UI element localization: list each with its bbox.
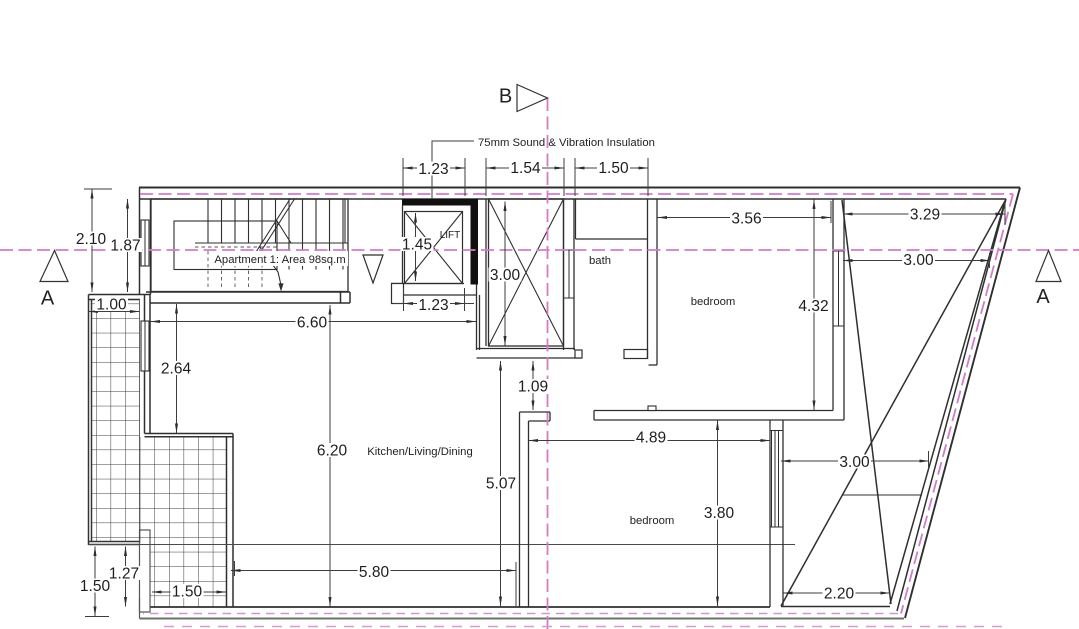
svg-text:1.27: 1.27 xyxy=(109,565,139,582)
svg-text:1.09: 1.09 xyxy=(518,378,548,395)
svg-text:bedroom: bedroom xyxy=(691,296,736,308)
svg-text:3.00: 3.00 xyxy=(490,267,521,284)
svg-text:1.00: 1.00 xyxy=(96,296,127,313)
svg-text:B: B xyxy=(499,86,512,108)
svg-text:75mm Sound & Vibration Insulat: 75mm Sound & Vibration Insulation xyxy=(478,137,655,149)
svg-text:1.50: 1.50 xyxy=(172,583,203,600)
svg-text:1.50: 1.50 xyxy=(80,578,111,595)
svg-text:3.00: 3.00 xyxy=(903,252,934,269)
svg-text:A: A xyxy=(41,288,55,310)
svg-text:bath: bath xyxy=(589,255,611,267)
svg-text:1.87: 1.87 xyxy=(110,237,140,254)
svg-text:2.10: 2.10 xyxy=(76,231,107,248)
svg-text:5.07: 5.07 xyxy=(486,475,516,492)
svg-text:1.23: 1.23 xyxy=(418,297,448,314)
svg-text:3.80: 3.80 xyxy=(704,505,735,522)
svg-text:3.29: 3.29 xyxy=(910,206,940,223)
svg-text:4.89: 4.89 xyxy=(636,429,666,446)
svg-text:5.80: 5.80 xyxy=(359,564,390,581)
svg-text:2.20: 2.20 xyxy=(824,585,855,602)
svg-text:1.54: 1.54 xyxy=(510,160,541,177)
svg-text:3.00: 3.00 xyxy=(839,454,870,471)
svg-text:4.32: 4.32 xyxy=(798,298,828,315)
svg-text:6.20: 6.20 xyxy=(317,442,348,459)
svg-text:Kitchen/Living/Dining: Kitchen/Living/Dining xyxy=(367,446,473,458)
svg-text:bedroom: bedroom xyxy=(630,515,675,527)
svg-text:1.50: 1.50 xyxy=(598,160,629,177)
svg-text:2.64: 2.64 xyxy=(161,360,192,377)
svg-text:1.23: 1.23 xyxy=(418,161,448,178)
svg-text:6.60: 6.60 xyxy=(297,314,328,331)
svg-text:1.45: 1.45 xyxy=(402,236,432,253)
svg-text:A: A xyxy=(1036,286,1050,308)
svg-text:Apartment 1: Area 98sq.m: Apartment 1: Area 98sq.m xyxy=(214,254,345,266)
svg-text:LIFT: LIFT xyxy=(440,230,461,241)
svg-text:3.56: 3.56 xyxy=(731,210,761,227)
